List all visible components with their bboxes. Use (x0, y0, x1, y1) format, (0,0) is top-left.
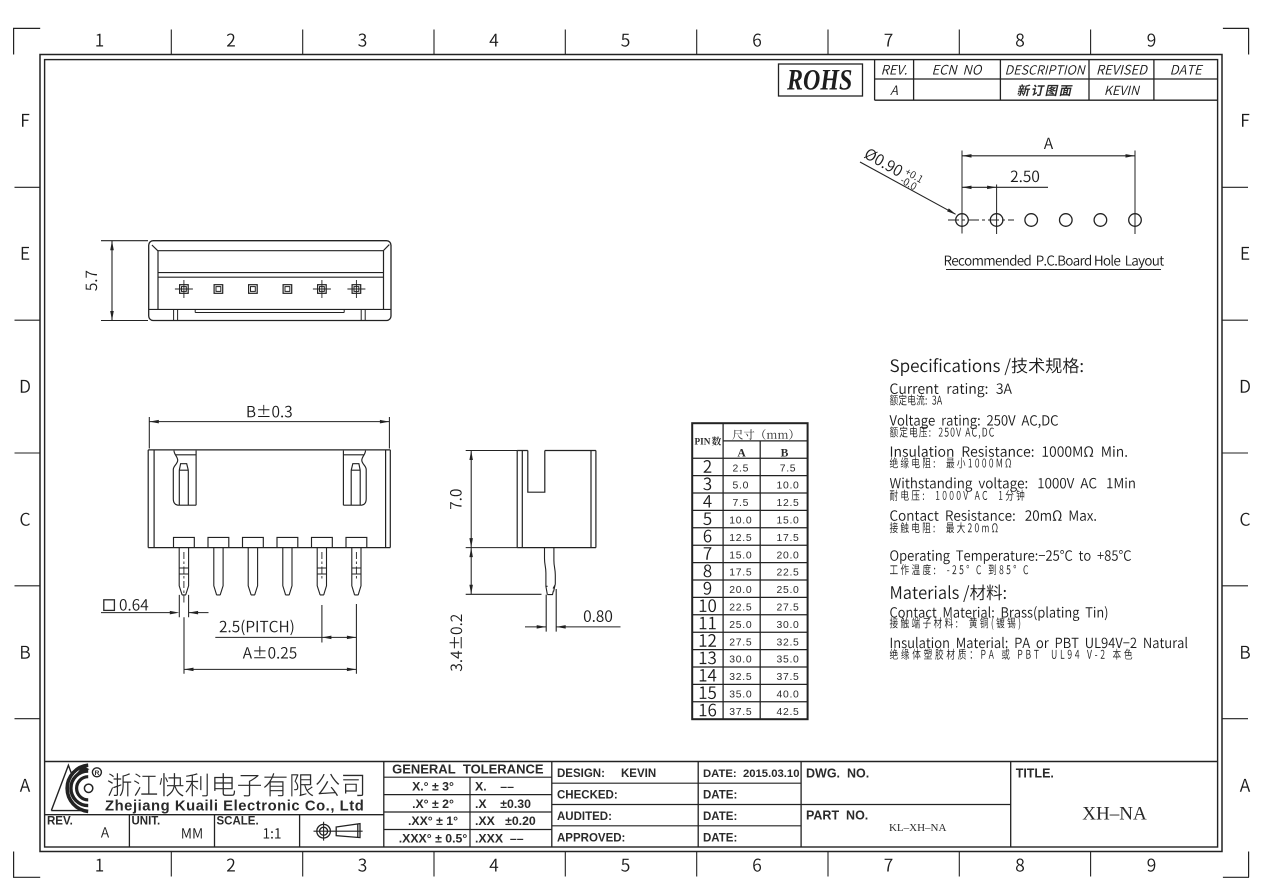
svg-text:42.5: 42.5 (776, 707, 799, 718)
svg-text:.X° ± 2°: .X° ± 2° (412, 797, 454, 811)
svg-text:APPROVED:: APPROVED: (557, 832, 625, 844)
svg-text:27.5: 27.5 (729, 637, 752, 648)
svg-text:25.0: 25.0 (729, 620, 752, 631)
svg-text:30.0: 30.0 (776, 620, 799, 631)
svg-text:ROHS: ROHS (786, 63, 852, 96)
svg-text:B: B (781, 446, 789, 459)
svg-text:22.5: 22.5 (776, 568, 799, 579)
svg-text:Zhejiang Kuaili Electronic Co.: Zhejiang Kuaili Electronic Co., Ltd (105, 798, 364, 814)
svg-text:PART NO.: PART NO. (806, 809, 868, 823)
svg-text:XH–NA: XH–NA (1082, 804, 1147, 825)
svg-text:37.5: 37.5 (776, 672, 799, 683)
svg-text:2.5: 2.5 (733, 463, 750, 474)
svg-text:A: A (737, 446, 746, 459)
svg-text:PIN: PIN (695, 437, 711, 447)
svg-text:.XXX ––: .XXX –– (475, 832, 524, 846)
svg-text:R: R (94, 770, 99, 777)
svg-text:20.0: 20.0 (729, 585, 752, 596)
svg-text:KL–XH–NA: KL–XH–NA (889, 822, 946, 834)
svg-text:17.5: 17.5 (729, 568, 752, 579)
svg-text:22.5: 22.5 (729, 603, 752, 614)
svg-text:DESIGN:: DESIGN: (557, 768, 605, 780)
svg-text:27.5: 27.5 (776, 603, 799, 614)
svg-text:AUDITED:: AUDITED: (557, 811, 612, 823)
svg-text:DATE: 2015.03.10: DATE: 2015.03.10 (703, 768, 800, 780)
svg-text:10.0: 10.0 (776, 481, 799, 492)
svg-text:DWG. NO.: DWG. NO. (806, 767, 869, 781)
svg-text:32.5: 32.5 (729, 672, 752, 683)
svg-text:35.0: 35.0 (729, 690, 752, 701)
svg-text:37.5: 37.5 (729, 707, 752, 718)
svg-text:REV.: REV. (47, 816, 73, 828)
svg-text:12.5: 12.5 (776, 498, 799, 509)
svg-text:.X ±0.30: .X ±0.30 (475, 797, 531, 811)
svg-text:17.5: 17.5 (776, 533, 799, 544)
svg-text:.XXX° ± 0.5°: .XXX° ± 0.5° (399, 832, 468, 846)
svg-text:10.0: 10.0 (729, 516, 752, 527)
svg-text:KEVIN: KEVIN (621, 768, 656, 780)
svg-text:.XX° ± 1°: .XX° ± 1° (408, 814, 458, 828)
svg-text:X.° ± 3°: X.° ± 3° (412, 779, 454, 793)
svg-text:15.0: 15.0 (776, 516, 799, 527)
svg-text:7.5: 7.5 (733, 498, 750, 509)
svg-text:5.0: 5.0 (733, 481, 750, 492)
svg-text:20.0: 20.0 (776, 550, 799, 561)
svg-text:CHECKED:: CHECKED: (557, 790, 618, 802)
svg-text:25.0: 25.0 (776, 585, 799, 596)
svg-text:GENERAL TOLERANCE: GENERAL TOLERANCE (392, 762, 544, 777)
svg-text:35.0: 35.0 (776, 655, 799, 666)
svg-text:12.5: 12.5 (729, 533, 752, 544)
svg-text:X. ––: X. –– (475, 779, 514, 793)
svg-text:SCALE.: SCALE. (217, 816, 259, 828)
svg-text:TITLE.: TITLE. (1016, 767, 1054, 781)
svg-text:UNIT.: UNIT. (132, 816, 161, 828)
svg-text:15.0: 15.0 (729, 550, 752, 561)
svg-text:40.0: 40.0 (776, 690, 799, 701)
svg-text:DATE:: DATE: (703, 790, 737, 802)
svg-text:DATE:: DATE: (703, 811, 737, 823)
svg-text:7.5: 7.5 (780, 463, 797, 474)
svg-text:32.5: 32.5 (776, 637, 799, 648)
svg-text:DATE:: DATE: (703, 832, 737, 844)
svg-text:30.0: 30.0 (729, 655, 752, 666)
svg-text:.XX ±0.20: .XX ±0.20 (475, 814, 536, 828)
